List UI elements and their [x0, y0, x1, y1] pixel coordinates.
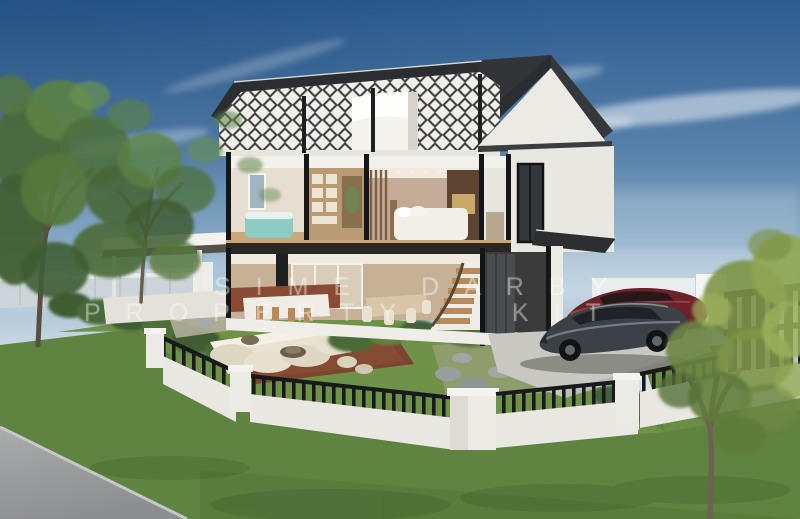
floor-slab	[226, 242, 511, 254]
fence-pillar	[615, 376, 639, 430]
render-scene	[0, 0, 800, 519]
ground-floor	[226, 246, 563, 346]
fence-pillar	[230, 368, 251, 412]
pouf	[337, 356, 357, 368]
fence-pillar	[146, 330, 164, 368]
fence-corner-pillar	[447, 388, 499, 450]
pouf	[355, 364, 373, 374]
upper-floor	[226, 152, 511, 254]
house-render-image: SIME DARBY PROPERTY KIT	[0, 0, 800, 519]
